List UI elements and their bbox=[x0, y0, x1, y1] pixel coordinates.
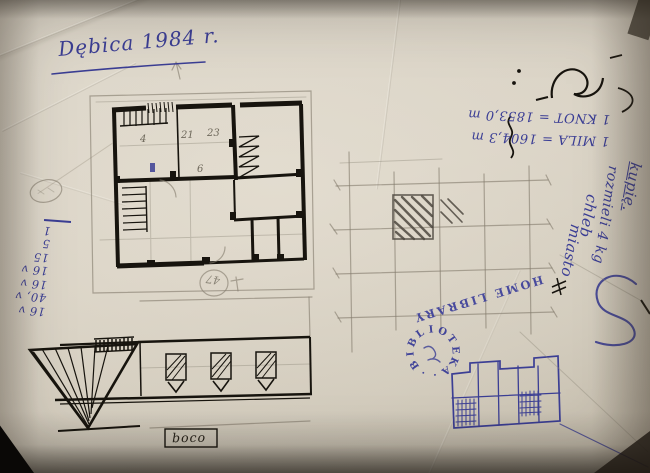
room-number: 4 bbox=[140, 134, 146, 145]
room-number: 21 bbox=[181, 130, 194, 141]
sketch-layer bbox=[0, 0, 650, 473]
sum-column: 16 v 40, v 16 v 16 v 15 5 1 bbox=[0, 221, 51, 318]
floor-plan-sketch bbox=[90, 91, 314, 293]
room-number: 23 bbox=[207, 128, 220, 139]
underline-strokes bbox=[52, 62, 205, 74]
stamp-ring-letter: B bbox=[408, 358, 422, 371]
stamp-ring-letter: T bbox=[444, 333, 457, 345]
stamp-ring-letter: · bbox=[420, 366, 428, 377]
stamp-ring-letter: K bbox=[446, 355, 460, 368]
paper-sheet: Dębica 1984 r. 1 MILA = 1604,3 m 1 KNOT … bbox=[0, 0, 650, 473]
stamp-ring-letter: I bbox=[405, 351, 416, 357]
stamp-ring-letter: E bbox=[449, 346, 461, 355]
stamp-ring-letter: B bbox=[406, 337, 420, 349]
unit-conversion-note: 1 MILA = 1604,3 m 1 KNOT = 1853,0 m bbox=[423, 95, 611, 151]
stamp-ring-letter: I bbox=[428, 324, 434, 335]
section-elevation-sketch bbox=[30, 297, 312, 447]
bottom-label: boco bbox=[172, 430, 206, 446]
stamp-ring-letter: · bbox=[433, 368, 437, 379]
room-number: 6 bbox=[197, 164, 203, 175]
circled-number: 47 bbox=[205, 272, 221, 287]
photo-background: Dębica 1984 r. 1 MILA = 1604,3 m 1 KNOT … bbox=[0, 0, 650, 473]
